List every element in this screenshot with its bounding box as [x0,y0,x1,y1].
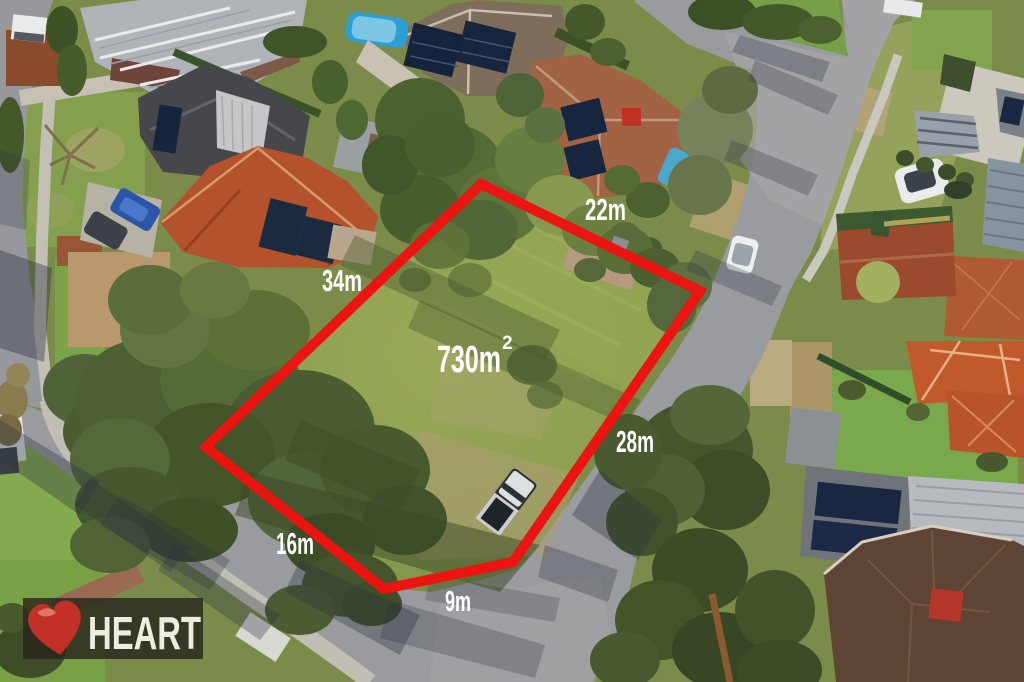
svg-text:9m: 9m [445,586,471,618]
svg-text:28m: 28m [616,424,654,459]
svg-text:22m: 22m [585,192,626,227]
svg-text:HEART: HEART [88,607,201,659]
svg-text:2: 2 [502,333,513,354]
svg-text:16m: 16m [276,526,314,561]
svg-text:34m: 34m [322,263,362,298]
svg-text:730m: 730m [437,339,501,381]
